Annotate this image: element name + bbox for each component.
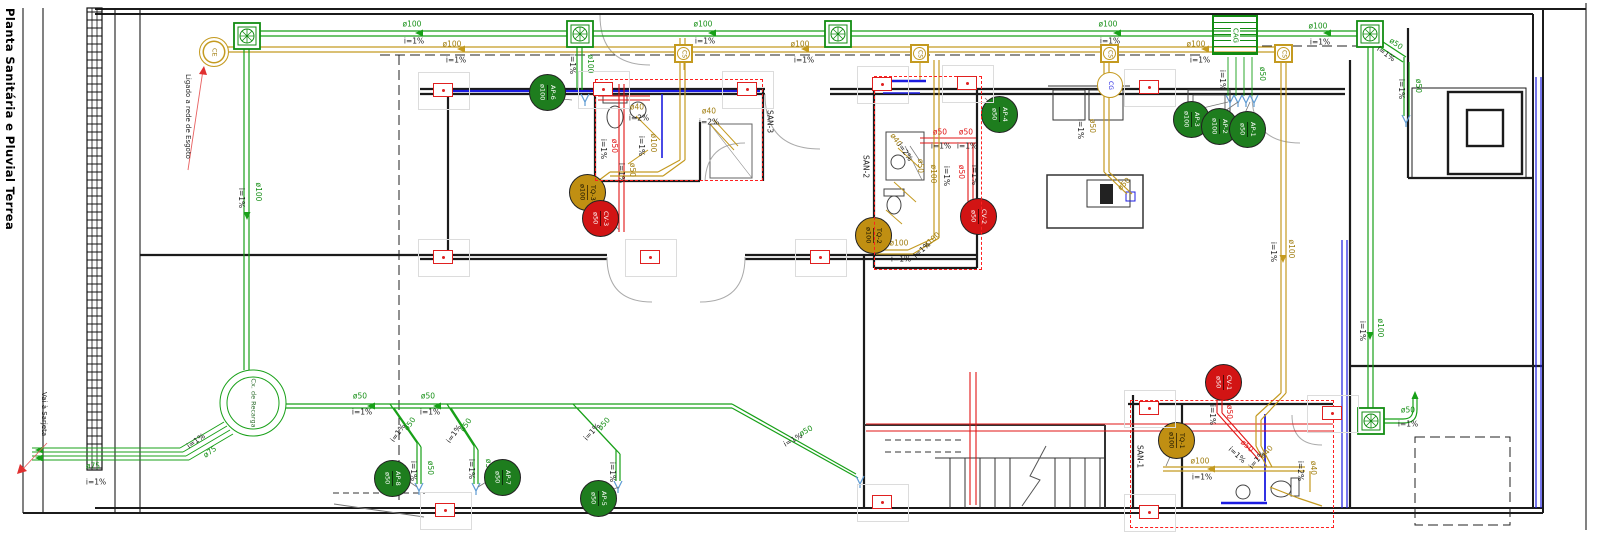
badge-diameter: ø50 xyxy=(493,471,503,483)
badge-AP-8: ø50AP-8 xyxy=(374,460,411,497)
cg-grease-box-symbol: CG xyxy=(1097,72,1123,98)
badge-AP-1: ø50AP-1 xyxy=(1229,111,1266,148)
pipe-label: i=1% xyxy=(1076,119,1084,139)
badge-id: AP-2 xyxy=(1219,119,1230,134)
badge-id: CV-1 xyxy=(1223,375,1234,390)
floor-plan-canvas: Planta Sanitária e Pluvial Terrea Ligado… xyxy=(0,0,1600,542)
cs-siphon-box-symbol: CS xyxy=(1100,44,1119,63)
cs-siphon-box-symbol: CS xyxy=(910,44,929,63)
callout-box-SAN-2 xyxy=(874,76,982,270)
column-marker xyxy=(872,495,892,509)
pipe-label: ø50 xyxy=(421,392,435,400)
pipe-label: i=1% xyxy=(1218,70,1226,90)
pipe-label: i=1% xyxy=(794,56,814,64)
pipe-label: ø50 xyxy=(1116,176,1131,191)
badge-id: AP-3 xyxy=(1191,112,1202,127)
annotation-overlay: Planta Sanitária e Pluvial Terrea Ligado… xyxy=(0,0,1600,542)
badge-AP-7: ø50AP-7 xyxy=(484,459,521,496)
badge-diameter: ø100 xyxy=(864,227,874,243)
badge-id: TQ-3 xyxy=(587,185,598,201)
pipe-label: i=1% xyxy=(237,188,245,208)
pipe-label: ø75 xyxy=(86,462,100,470)
column-marker xyxy=(435,503,455,517)
badge-diameter: ø100 xyxy=(1210,118,1220,134)
pipe-label: i=1% xyxy=(1269,242,1277,262)
pipe-label: i=1% xyxy=(568,54,576,74)
pipe-label: i=1% xyxy=(695,37,715,45)
cag-box-symbol: CAG xyxy=(1212,15,1258,55)
pipe-label: ø50 xyxy=(1401,406,1415,414)
badge-diameter: ø50 xyxy=(1238,123,1248,135)
pipe-label: i=1% xyxy=(445,424,463,445)
badge-id: AP-7 xyxy=(502,470,513,485)
pipe-label: i=1% xyxy=(608,462,616,482)
column-marker xyxy=(593,82,613,96)
column-marker xyxy=(872,77,892,91)
column-marker xyxy=(1139,80,1159,94)
pipe-label: i=1% xyxy=(86,478,106,486)
column-marker xyxy=(1139,401,1159,415)
badge-diameter: ø50 xyxy=(591,212,601,224)
pipe-label: i=1% xyxy=(404,37,424,45)
cs-label: CS xyxy=(1107,50,1113,58)
pipe-label: ø50 xyxy=(426,461,434,475)
cs-label: CS xyxy=(917,50,923,58)
pipe-label: i=1% xyxy=(420,408,440,416)
pipe-label: ø100 xyxy=(403,20,422,28)
cg-label: CG xyxy=(1107,81,1113,90)
badge-AP-5: ø50AP-5 xyxy=(580,480,617,517)
note-vai-sarjeta: Vai à Sarjeta xyxy=(40,392,47,436)
badge-diameter: ø50 xyxy=(1214,376,1224,388)
badge-CV-1: ø50CV-1 xyxy=(1205,364,1242,401)
pipe-label: ø50 xyxy=(353,392,367,400)
callout-label-SAN-3: SAN-3 xyxy=(766,110,774,133)
pipe-label: ø100 xyxy=(1309,22,1328,30)
drawing-title: Planta Sanitária e Pluvial Terrea xyxy=(3,8,17,230)
column-marker xyxy=(810,250,830,264)
badge-diameter: ø50 xyxy=(990,108,1000,120)
pipe-label: i=1% xyxy=(1398,420,1418,428)
pipe-label: i=1% xyxy=(1310,38,1330,46)
cs-label: CS xyxy=(1281,50,1287,58)
column-marker xyxy=(433,250,453,264)
cs-label: CS xyxy=(681,50,687,58)
badge-diameter: ø50 xyxy=(589,492,599,504)
pipe-label: ø50 xyxy=(1414,79,1422,93)
pipe-label: i=1% xyxy=(1190,56,1210,64)
column-marker xyxy=(1139,505,1159,519)
pipe-label: ø100 xyxy=(791,40,810,48)
badge-id: CV-3 xyxy=(600,211,611,226)
pipe-label: ø50 xyxy=(1258,67,1266,81)
pipe-label: i=1% xyxy=(389,423,407,444)
badge-AP-6: ø100AP-6 xyxy=(529,74,566,111)
callout-label-SAN-1: SAN-1 xyxy=(1136,445,1144,468)
column-marker xyxy=(1322,406,1342,420)
pipe-label: ø75 xyxy=(202,445,218,459)
column-marker xyxy=(640,250,660,264)
pipe-label: i=1% xyxy=(186,432,207,450)
column-marker xyxy=(737,82,757,96)
pipe-label: i=1% xyxy=(782,432,803,448)
pipe-label: ø100 xyxy=(1099,20,1118,28)
ce-label: CE xyxy=(211,48,218,57)
badge-diameter: ø50 xyxy=(383,472,393,484)
cs-siphon-box-symbol: CS xyxy=(1274,44,1293,63)
pipe-label: ø100 xyxy=(1287,240,1295,259)
pipe-label: i=1% xyxy=(446,56,466,64)
pipe-label: i=1% xyxy=(352,408,372,416)
callout-label-SAN-2: SAN-2 xyxy=(862,155,870,178)
cs-siphon-box-symbol: CS xyxy=(674,44,693,63)
pipe-label: ø50 xyxy=(1388,37,1404,51)
badge-diameter: ø100 xyxy=(538,84,548,100)
badge-diameter: ø100 xyxy=(578,184,588,200)
badge-id: AP-1 xyxy=(1247,122,1258,137)
badge-id: AP-5 xyxy=(598,491,609,506)
pipe-label: ø50 xyxy=(1088,119,1096,133)
recharge-box-label: Cx. de Recarga xyxy=(250,378,257,427)
note-ligado-esgoto: Ligado a rede de Esgoto xyxy=(184,74,191,159)
pipe-label: i=1% xyxy=(582,422,601,442)
badge-diameter: ø100 xyxy=(1182,111,1192,127)
pipe-label: ø100 xyxy=(254,183,262,202)
pipe-label: i=1% xyxy=(467,459,475,479)
badge-id: AP-8 xyxy=(392,471,403,486)
pipe-label: ø100 xyxy=(694,20,713,28)
cag-label: CAG xyxy=(1231,27,1240,44)
badge-CV-3: ø50CV-3 xyxy=(582,200,619,237)
pipe-label: i=1% xyxy=(1358,321,1366,341)
ce-sewage-manhole-symbol: CE xyxy=(199,37,229,67)
column-marker xyxy=(433,83,453,97)
pipe-label: i=1% xyxy=(1397,79,1405,99)
pipe-label: ø100 xyxy=(1187,40,1206,48)
pipe-label: ø100 xyxy=(443,40,462,48)
badge-id: AP-6 xyxy=(547,85,558,100)
badge-id: AP-4 xyxy=(999,107,1010,122)
column-marker xyxy=(957,76,977,90)
pipe-label: ø100 xyxy=(1376,319,1384,338)
